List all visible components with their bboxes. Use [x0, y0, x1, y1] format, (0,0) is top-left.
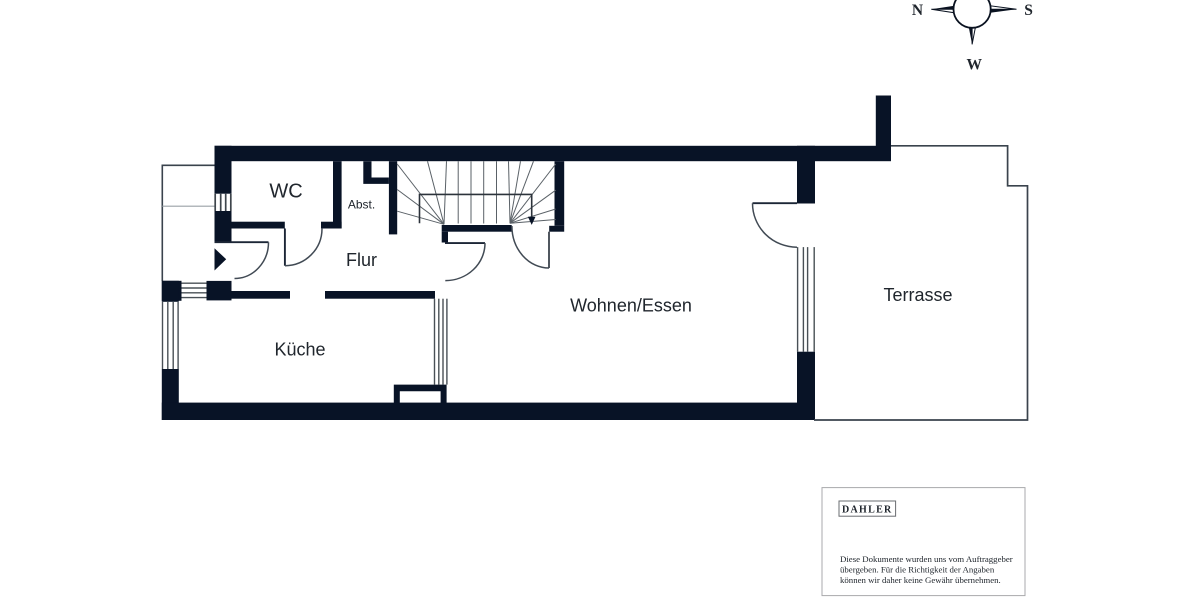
svg-text:Wohnen/Essen: Wohnen/Essen: [570, 296, 692, 316]
svg-text:übergeben. Für die Richtigkeit: übergeben. Für die Richtigkeit der Angab…: [840, 565, 995, 575]
svg-text:Flur: Flur: [346, 250, 377, 270]
svg-text:WC: WC: [269, 181, 302, 203]
svg-text:W: W: [967, 56, 983, 73]
svg-text:DAHLER: DAHLER: [842, 505, 893, 516]
svg-text:N: N: [912, 2, 923, 19]
svg-text:können wir daher keine Gewähr: können wir daher keine Gewähr übernehmen…: [840, 575, 1001, 585]
svg-text:S: S: [1024, 2, 1033, 19]
svg-text:Abst.: Abst.: [348, 198, 375, 212]
svg-text:Küche: Küche: [274, 340, 325, 360]
svg-text:Diese Dokumente wurden uns vom: Diese Dokumente wurden uns vom Auftragge…: [840, 554, 1013, 564]
svg-text:Terrasse: Terrasse: [883, 285, 952, 305]
